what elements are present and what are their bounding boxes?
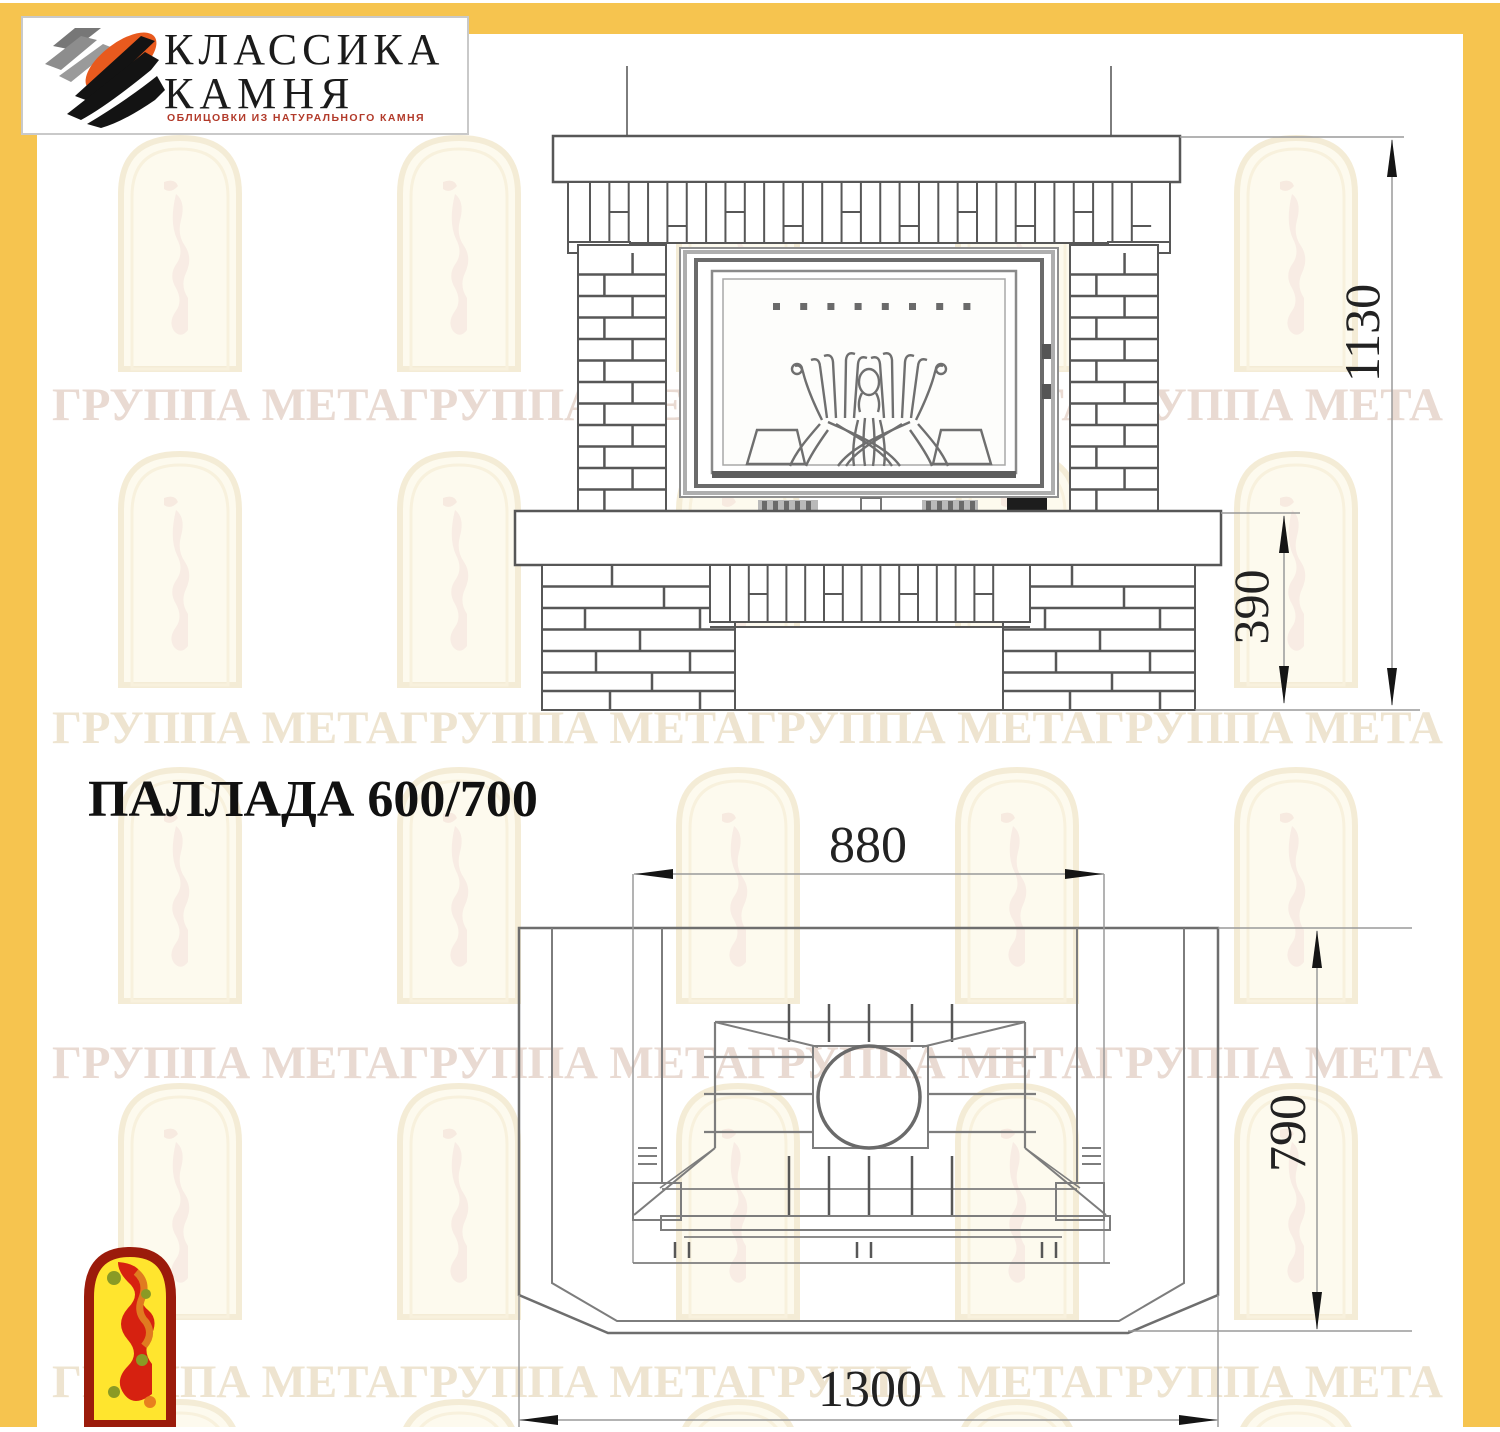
svg-text:790: 790	[1260, 1094, 1317, 1172]
svg-text:390: 390	[1223, 570, 1279, 645]
svg-text:880: 880	[829, 817, 907, 874]
svg-text:1130: 1130	[1334, 284, 1390, 382]
svg-text:1300: 1300	[818, 1361, 922, 1418]
